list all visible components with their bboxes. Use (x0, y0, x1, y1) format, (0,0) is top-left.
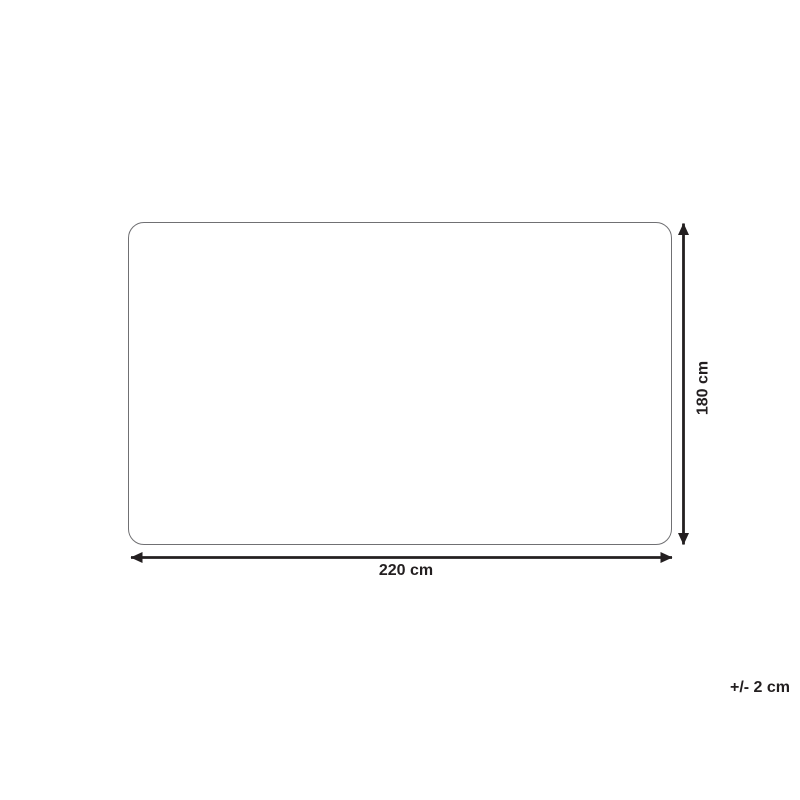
width-dimension-label: 220 cm (379, 561, 433, 580)
product-outline (128, 222, 672, 545)
height-dimension-label: 180 cm (693, 361, 712, 415)
dimension-diagram: 220 cm 180 cm +/- 2 cm (0, 0, 800, 800)
tolerance-note: +/- 2 cm (730, 678, 790, 697)
